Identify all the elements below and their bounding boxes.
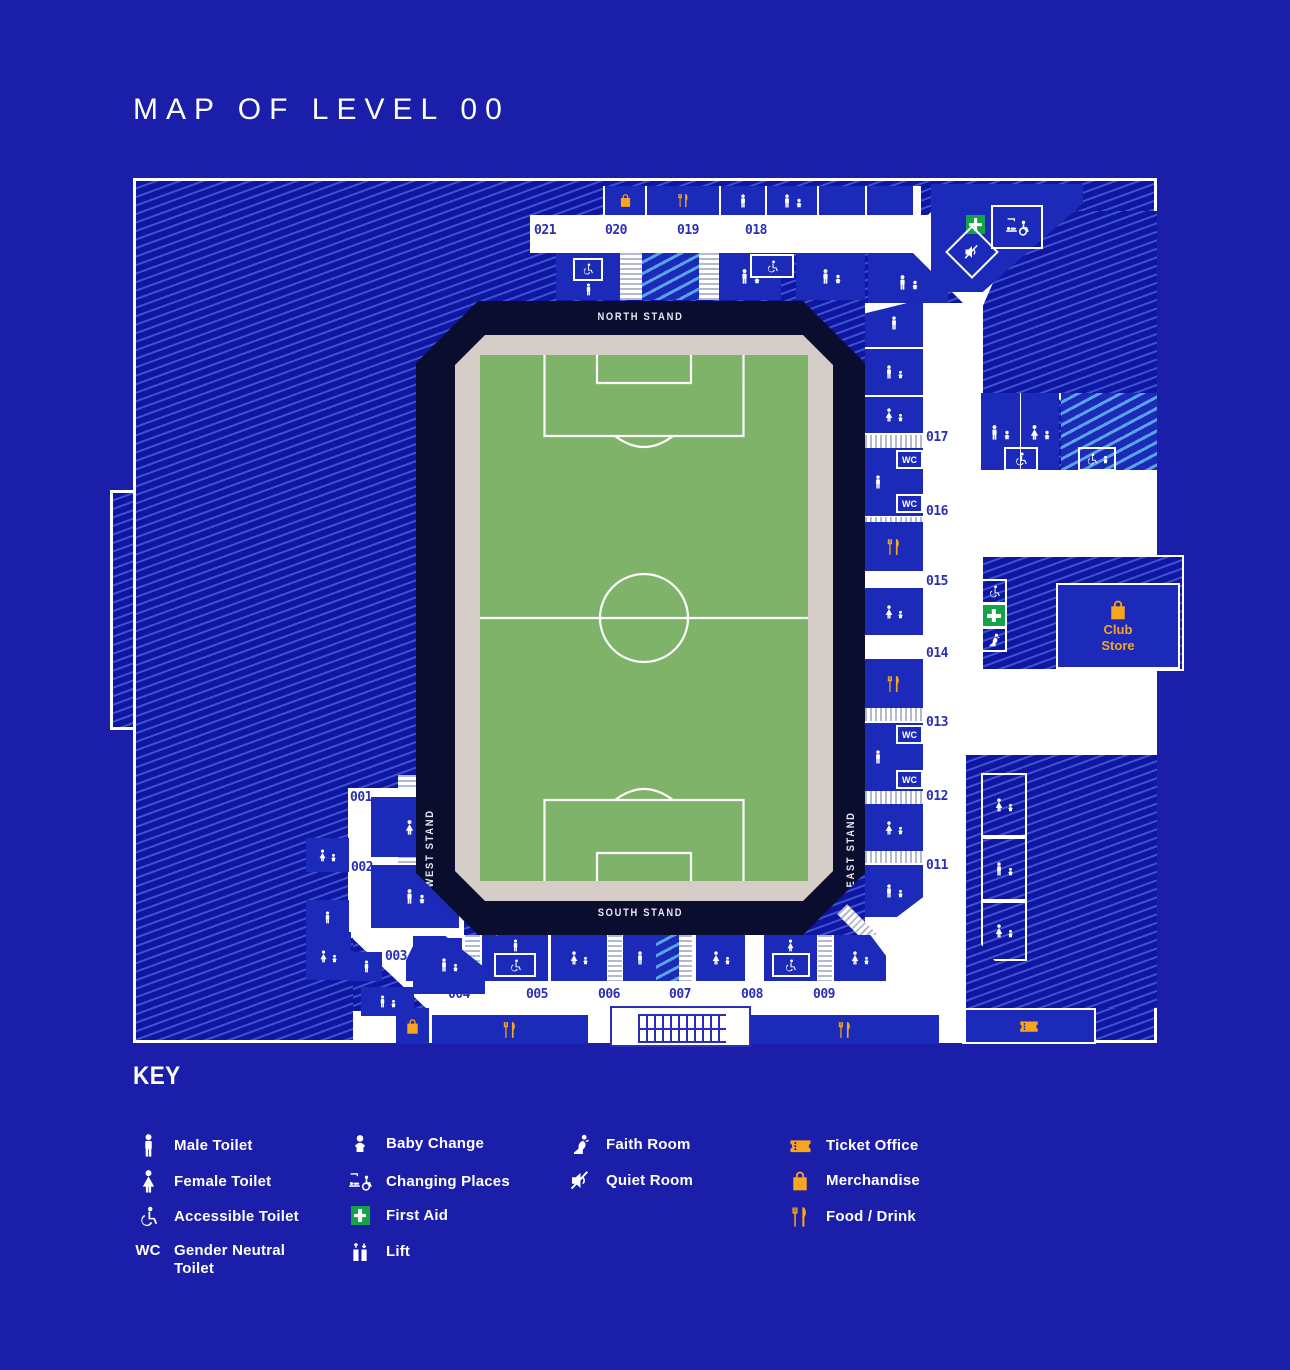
- toilet-block: [351, 952, 382, 981]
- toilet-block: [865, 588, 923, 635]
- stadium-map: 021 020 019 018: [133, 178, 1157, 1043]
- empty-cell: [819, 186, 865, 215]
- first-aid-icon: [351, 1206, 370, 1225]
- baby-change-icon: [330, 853, 337, 862]
- turnstile-icon: [638, 1014, 726, 1043]
- toilet-block: [764, 935, 817, 981]
- female-toilet-icon: [1029, 425, 1040, 440]
- male-toilet-icon: [378, 995, 387, 1008]
- female-toilet-icon: [884, 821, 894, 835]
- male-toilet-icon: [439, 958, 449, 972]
- hatched-block: [656, 935, 679, 981]
- key-item-food-drink: Food / Drink: [788, 1206, 916, 1228]
- male-toilet-icon: [404, 889, 415, 904]
- toilet-block: [623, 935, 656, 981]
- key-item-baby-change: Baby Change: [348, 1134, 484, 1153]
- male-toilet-icon: [739, 269, 750, 284]
- key-item-merchandise: Merchandise: [788, 1170, 920, 1192]
- male-toilet-icon: [897, 275, 908, 290]
- baby-change-icon: [897, 413, 904, 422]
- stairs: [620, 253, 642, 300]
- food-drink-icon: [676, 193, 691, 208]
- male-baby-toilet-cell: [767, 186, 817, 215]
- west-stand-label: WEST STAND: [424, 349, 436, 888]
- male-toilet-icon: [584, 283, 593, 296]
- female-toilet-icon: [884, 605, 894, 619]
- male-toilet-icon: [994, 862, 1004, 876]
- food-drink-icon: [501, 1021, 519, 1039]
- male-toilet-icon: [884, 365, 894, 379]
- food-block: [865, 522, 923, 571]
- merchandise-icon: [1107, 599, 1129, 621]
- quiet-room-icon: [964, 244, 980, 260]
- club-store-area: Club Store: [981, 555, 1184, 671]
- changing-places-box: [1078, 447, 1116, 471]
- faith-room-icon: [570, 1134, 591, 1155]
- empty-cell: [867, 186, 913, 215]
- baby-change-icon: [418, 894, 426, 904]
- female-toilet-icon: [884, 408, 894, 422]
- wc-text-icon: WC: [136, 1242, 160, 1260]
- baby-change-icon: [390, 999, 397, 1008]
- block-number-019: 019: [677, 223, 699, 238]
- baby-change-icon: [1003, 430, 1011, 440]
- toilet-block: [865, 397, 923, 433]
- north-concourse: [530, 215, 958, 253]
- gender-neutral-toilet: WC: [896, 725, 923, 744]
- female-toilet-icon: [140, 1170, 157, 1193]
- male-toilet-icon: [140, 1134, 157, 1157]
- male-toilet-icon: [511, 939, 520, 952]
- toilet-block: [306, 900, 349, 934]
- key-item-faith-room: Faith Room: [568, 1134, 691, 1155]
- block-number-013: 013: [926, 715, 948, 730]
- female-toilet-icon: [994, 924, 1004, 938]
- accessible-toilet-box: [750, 254, 794, 278]
- male-toilet-icon: [635, 951, 645, 965]
- block-number-014: 014: [926, 646, 948, 661]
- toilet-block: [556, 253, 620, 300]
- male-toilet-icon: [989, 425, 1000, 440]
- female-toilet-icon: [569, 951, 579, 965]
- key-item-ticket-office: Ticket Office: [788, 1134, 918, 1157]
- baby-change-icon: [1007, 929, 1014, 938]
- key-label: Gender Neutral Toilet: [174, 1242, 285, 1278]
- baby-change-icon: [331, 954, 338, 963]
- accessible-toilet-icon: [582, 263, 594, 275]
- baby-change-icon: [897, 610, 904, 619]
- accessible-toilet-icon: [509, 959, 522, 972]
- food-drink-icon: [885, 675, 903, 693]
- female-toilet-icon: [850, 951, 860, 965]
- stairs: [865, 851, 923, 863]
- baby-change-icon: [1043, 430, 1051, 440]
- block-number-017: 017: [926, 430, 948, 445]
- block-number-001: 001: [350, 790, 372, 805]
- key-heading: KEY: [133, 1062, 181, 1091]
- block-number-006: 006: [598, 987, 620, 1002]
- baby-change-icon: [582, 956, 589, 965]
- block-number-020: 020: [605, 223, 627, 238]
- key-item-lift: Lift: [348, 1242, 410, 1262]
- gender-neutral-toilet: WC: [896, 770, 923, 789]
- east-walkway: [961, 671, 1157, 755]
- accessible-toilet-icon: [784, 959, 797, 972]
- block-number-009: 009: [813, 987, 835, 1002]
- male-toilet-icon: [362, 960, 371, 973]
- baby-change-icon: [1102, 455, 1109, 464]
- key-label-line1: Gender Neutral: [174, 1242, 285, 1259]
- football-pitch: [480, 355, 808, 881]
- east-walkway: [961, 470, 1157, 555]
- block-number-005: 005: [526, 987, 548, 1002]
- accessible-toilet-icon: [988, 585, 1001, 598]
- male-toilet-cell: [721, 186, 765, 215]
- female-toilet-icon: [318, 849, 327, 862]
- stadium-bowl: NORTH STAND SOUTH STAND WEST STAND EAST …: [416, 301, 865, 935]
- block-number-007: 007: [669, 987, 691, 1002]
- south-stand-label: SOUTH STAND: [450, 907, 832, 919]
- key-item-male-toilet: Male Toilet: [136, 1134, 253, 1157]
- toilet-block: [865, 349, 923, 395]
- male-toilet-icon: [884, 884, 894, 898]
- accessible-toilet-icon: [1014, 452, 1028, 466]
- male-toilet-icon: [889, 316, 899, 330]
- key-label: Baby Change: [386, 1135, 484, 1153]
- key-label: Changing Places: [386, 1173, 510, 1191]
- stairs: [608, 935, 622, 981]
- male-toilet-icon: [820, 269, 831, 284]
- baby-change-icon: [911, 280, 919, 290]
- baby-change-icon: [863, 956, 870, 965]
- baby-change-icon: [834, 274, 842, 284]
- gender-neutral-toilet: WC: [896, 494, 923, 513]
- stairs: [865, 708, 923, 721]
- baby-change-icon: [897, 889, 904, 898]
- key-item-quiet-room: Quiet Room: [568, 1170, 693, 1191]
- key-label: Quiet Room: [606, 1172, 693, 1190]
- stairs: [679, 935, 692, 981]
- first-aid-box: [981, 603, 1007, 628]
- block-number-002: 002: [351, 860, 373, 875]
- key-item-first-aid: First Aid: [348, 1206, 448, 1225]
- stairs: [818, 935, 832, 981]
- baby-change-icon: [897, 370, 904, 379]
- key-label: Faith Room: [606, 1136, 691, 1154]
- female-toilet-icon: [786, 939, 795, 952]
- male-toilet-icon: [873, 750, 883, 764]
- stairs: [699, 253, 719, 300]
- toilet-block: [981, 901, 1027, 961]
- key-item-changing-places: Changing Places: [348, 1170, 510, 1194]
- key-label: Male Toilet: [174, 1137, 253, 1155]
- block-number-021: 021: [534, 223, 556, 238]
- male-toilet-icon: [782, 194, 792, 208]
- male-toilet-icon: [873, 475, 883, 489]
- baby-change-icon: [724, 956, 731, 965]
- baby-change-icon: [795, 198, 803, 208]
- food-block: [865, 659, 923, 708]
- key-label: Merchandise: [826, 1172, 920, 1190]
- food-drink-icon: [885, 538, 903, 556]
- block-number-018: 018: [745, 223, 767, 238]
- toilet-block: [306, 838, 349, 872]
- gender-neutral-toilet: WC: [896, 450, 923, 469]
- toilet-block: [361, 987, 414, 1016]
- merchandise-cell: [605, 186, 645, 215]
- changing-places-box: [991, 205, 1043, 249]
- toilet-block: [482, 935, 548, 981]
- baby-change-icon: [1007, 803, 1014, 812]
- club-store: Club Store: [1056, 583, 1180, 669]
- lift-icon: [350, 1242, 370, 1262]
- stairs: [865, 791, 923, 804]
- toilet-block: [696, 935, 745, 981]
- key-label: Food / Drink: [826, 1208, 916, 1226]
- accessible-toilet-icon: [766, 260, 779, 273]
- key-item-accessible-toilet: Accessible Toilet: [136, 1206, 299, 1227]
- changing-places-icon: [348, 1170, 372, 1194]
- key-label: Female Toilet: [174, 1173, 271, 1191]
- accessible-toilet-icon: [138, 1206, 159, 1227]
- pitch-markings: [480, 355, 808, 881]
- north-stand-label: NORTH STAND: [450, 311, 832, 323]
- baby-change-icon: [897, 826, 904, 835]
- accessible-toilet-box: [981, 579, 1007, 604]
- baby-change-icon: [452, 963, 459, 972]
- accessible-toilet-icon: [1086, 453, 1098, 465]
- key-item-female-toilet: Female Toilet: [136, 1170, 271, 1193]
- key-label: Ticket Office: [826, 1137, 918, 1155]
- hatched-block: [642, 253, 699, 300]
- ticket-office-icon: [789, 1134, 812, 1157]
- block-number-011: 011: [926, 858, 948, 873]
- merchandise-icon: [618, 193, 633, 208]
- female-toilet-icon: [994, 798, 1004, 812]
- food-drink-icon: [836, 1021, 854, 1039]
- baby-change-icon: [1007, 867, 1014, 876]
- faith-room-box: [981, 627, 1007, 652]
- key-label: Lift: [386, 1243, 410, 1261]
- toilet-block: [981, 837, 1027, 901]
- stadium-map-page: MAP OF LEVEL 00 021 020 019 018: [0, 0, 1290, 1370]
- east-stand-label: EAST STAND: [845, 349, 857, 888]
- block-number-012: 012: [926, 789, 948, 804]
- club-store-label-2: Store: [1101, 638, 1134, 653]
- block-number-008: 008: [741, 987, 763, 1002]
- merchandise-icon: [789, 1170, 811, 1192]
- toilet-block: [306, 932, 351, 980]
- food-bar: [432, 1015, 588, 1044]
- baby-change-icon: [352, 1134, 368, 1153]
- toilet-block: [796, 253, 865, 300]
- merchandise-icon: [404, 1018, 421, 1035]
- key-label-line2: Toilet: [174, 1260, 214, 1277]
- male-toilet-icon: [323, 911, 332, 924]
- block-number-003: 003: [385, 949, 407, 964]
- ticket-office: [962, 1008, 1096, 1044]
- club-store-label-1: Club: [1104, 622, 1133, 637]
- toilet-block: [981, 773, 1027, 837]
- ticket-office-icon: [1019, 1016, 1039, 1036]
- quiet-room-icon: [570, 1170, 591, 1191]
- toilet-block: [551, 935, 607, 981]
- female-toilet-icon: [319, 950, 328, 963]
- block-number-016: 016: [926, 504, 948, 519]
- food-bar: [751, 1015, 939, 1044]
- page-title: MAP OF LEVEL 00: [133, 93, 510, 127]
- female-toilet-icon: [711, 951, 721, 965]
- key-label: Accessible Toilet: [174, 1208, 299, 1226]
- male-toilet-icon: [738, 194, 748, 208]
- block-number-015: 015: [926, 574, 948, 589]
- changing-places-icon: [1005, 217, 1029, 237]
- toilet-block: [865, 804, 923, 851]
- turnstile-entrance: [610, 1006, 751, 1047]
- north-facility-cells: [603, 186, 921, 215]
- faith-room-icon: [987, 633, 1001, 647]
- key-item-gender-neutral-toilet: WC Gender Neutral Toilet: [136, 1242, 285, 1278]
- accessible-toilet-box: [1004, 447, 1038, 471]
- food-drink-icon: [789, 1206, 811, 1228]
- stairs: [865, 435, 923, 448]
- female-toilet-icon: [404, 820, 415, 835]
- key-label: First Aid: [386, 1207, 448, 1225]
- food-cell: [647, 186, 719, 215]
